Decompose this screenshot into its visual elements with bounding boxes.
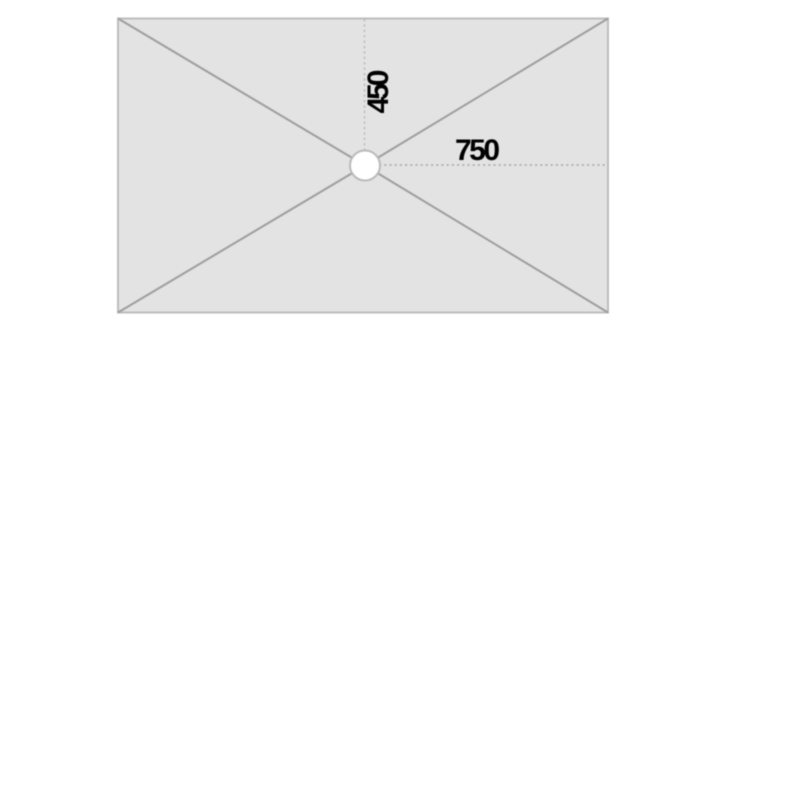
svg-text:450: 450 — [362, 70, 395, 114]
svg-text:750: 750 — [455, 134, 500, 167]
